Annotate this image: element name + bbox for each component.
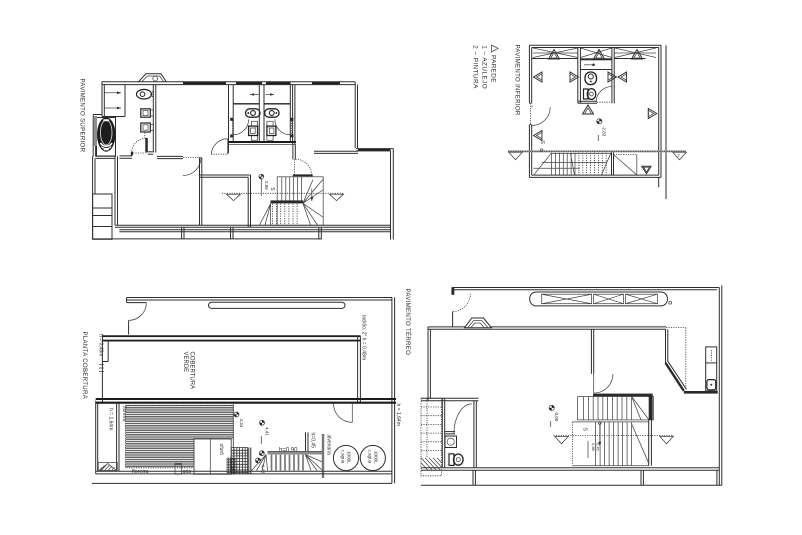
svg-text:h = 1,64m: h = 1,64m <box>108 408 114 430</box>
svg-text:PAVIMENTO TÉRREO: PAVIMENTO TÉRREO <box>404 289 411 356</box>
svg-text:PAVIMENTO SUPERIOR: PAVIMENTO SUPERIOR <box>79 79 86 153</box>
svg-text:PLANTA COBERTURA: PLANTA COBERTURA <box>81 332 88 400</box>
svg-text:0,00: 0,00 <box>554 413 559 422</box>
svg-text:4,34: 4,34 <box>239 419 244 428</box>
svg-text:4,41: 4,41 <box>264 427 269 436</box>
svg-text:VERDE: VERDE <box>182 352 188 373</box>
svg-text:1000L: 1000L <box>373 451 378 464</box>
svg-text:floreira: floreira <box>121 406 127 422</box>
svg-text:h = 1,64m: h = 1,64m <box>395 404 401 426</box>
svg-text:1000L: 1000L <box>347 451 352 464</box>
svg-text:ladrão, 2" h = 0,48m: ladrão, 2" h = 0,48m <box>361 315 367 360</box>
svg-text:COBERTURA: COBERTURA <box>188 352 194 390</box>
svg-text:0,88: 0,88 <box>591 443 596 452</box>
svg-text:PAVIMENTO INFERIOR: PAVIMENTO INFERIOR <box>514 45 521 116</box>
svg-text:alvenaria: alvenaria <box>326 435 332 456</box>
svg-text:PAREDE: PAREDE <box>489 55 496 83</box>
svg-text:2.86: 2.86 <box>264 181 269 190</box>
svg-text:-2.83: -2.83 <box>602 126 607 137</box>
svg-text:c.agua: c.agua <box>367 450 372 464</box>
svg-text:2 – PINTURA: 2 – PINTURA <box>471 45 478 89</box>
svg-text:0,45: 0,45 <box>596 443 601 452</box>
svg-text:c.agua: c.agua <box>341 450 346 464</box>
svg-text:ofurô: ofurô <box>218 444 224 456</box>
svg-text:h=0,45: h=0,45 <box>310 433 316 449</box>
svg-text:1 – AZULEJO: 1 – AZULEJO <box>480 45 487 89</box>
